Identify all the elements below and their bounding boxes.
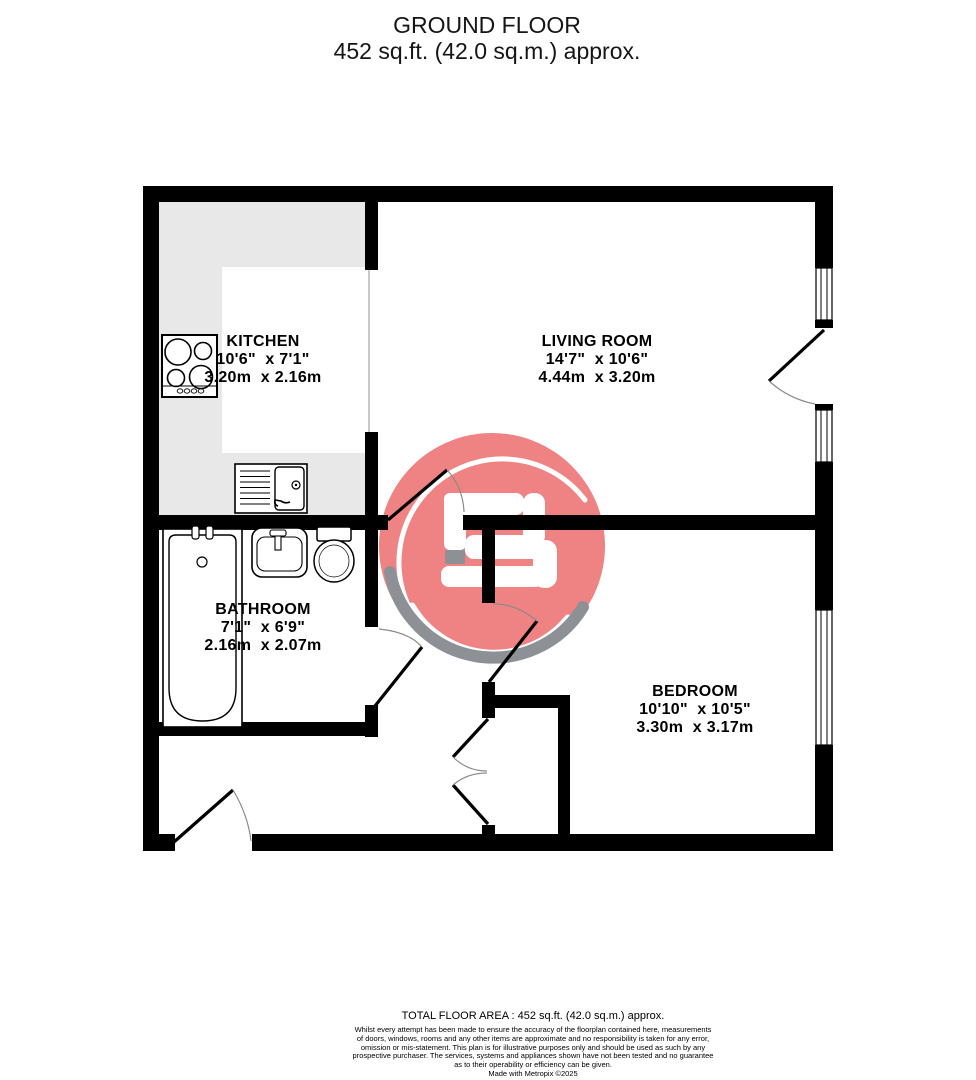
room-name: BEDROOM [636, 683, 753, 701]
room-size-imperial: 10'6" x 7'1" [204, 351, 321, 369]
room-name: LIVING ROOM [538, 333, 655, 351]
washbasin-icon [252, 528, 307, 577]
cupboard-doors [453, 719, 488, 824]
metropix-credit: Made with Metropix ©2025 [293, 1070, 773, 1079]
room-name: KITCHEN [204, 333, 321, 351]
living-room-window-2 [816, 410, 832, 462]
kitchen-sink-icon [235, 464, 307, 513]
room-size-imperial: 14'7" x 10'6" [538, 351, 655, 369]
bedroom-label: BEDROOM 10'10" x 10'5" 3.30m x 3.17m [636, 683, 753, 737]
floorplan-drawing [0, 0, 976, 1080]
floorplan-page: GROUND FLOOR 452 sq.ft. (42.0 sq.m.) app… [0, 0, 976, 1080]
bathroom-label: BATHROOM 7'1" x 6'9" 2.16m x 2.07m [204, 601, 321, 655]
balcony-door [769, 330, 824, 404]
bathroom-door [375, 629, 422, 706]
living-room-label: LIVING ROOM 14'7" x 10'6" 4.44m x 3.20m [538, 333, 655, 387]
room-size-metric: 3.20m x 2.16m [204, 369, 321, 387]
room-size-imperial: 10'10" x 10'5" [636, 701, 753, 719]
logo-letter-b [441, 493, 557, 588]
entry-door [174, 790, 251, 842]
toilet-icon [314, 527, 354, 582]
room-name: BATHROOM [204, 601, 321, 619]
footer: TOTAL FLOOR AREA : 452 sq.ft. (42.0 sq.m… [293, 1010, 773, 1079]
kitchen-label: KITCHEN 10'6" x 7'1" 3.20m x 2.16m [204, 333, 321, 387]
room-size-metric: 3.30m x 3.17m [636, 719, 753, 737]
living-room-window [816, 268, 832, 320]
total-floor-area: TOTAL FLOOR AREA : 452 sq.ft. (42.0 sq.m… [293, 1010, 773, 1023]
room-size-metric: 4.44m x 3.20m [538, 369, 655, 387]
room-size-metric: 2.16m x 2.07m [204, 637, 321, 655]
bedroom-window [816, 610, 832, 745]
room-size-imperial: 7'1" x 6'9" [204, 619, 321, 637]
